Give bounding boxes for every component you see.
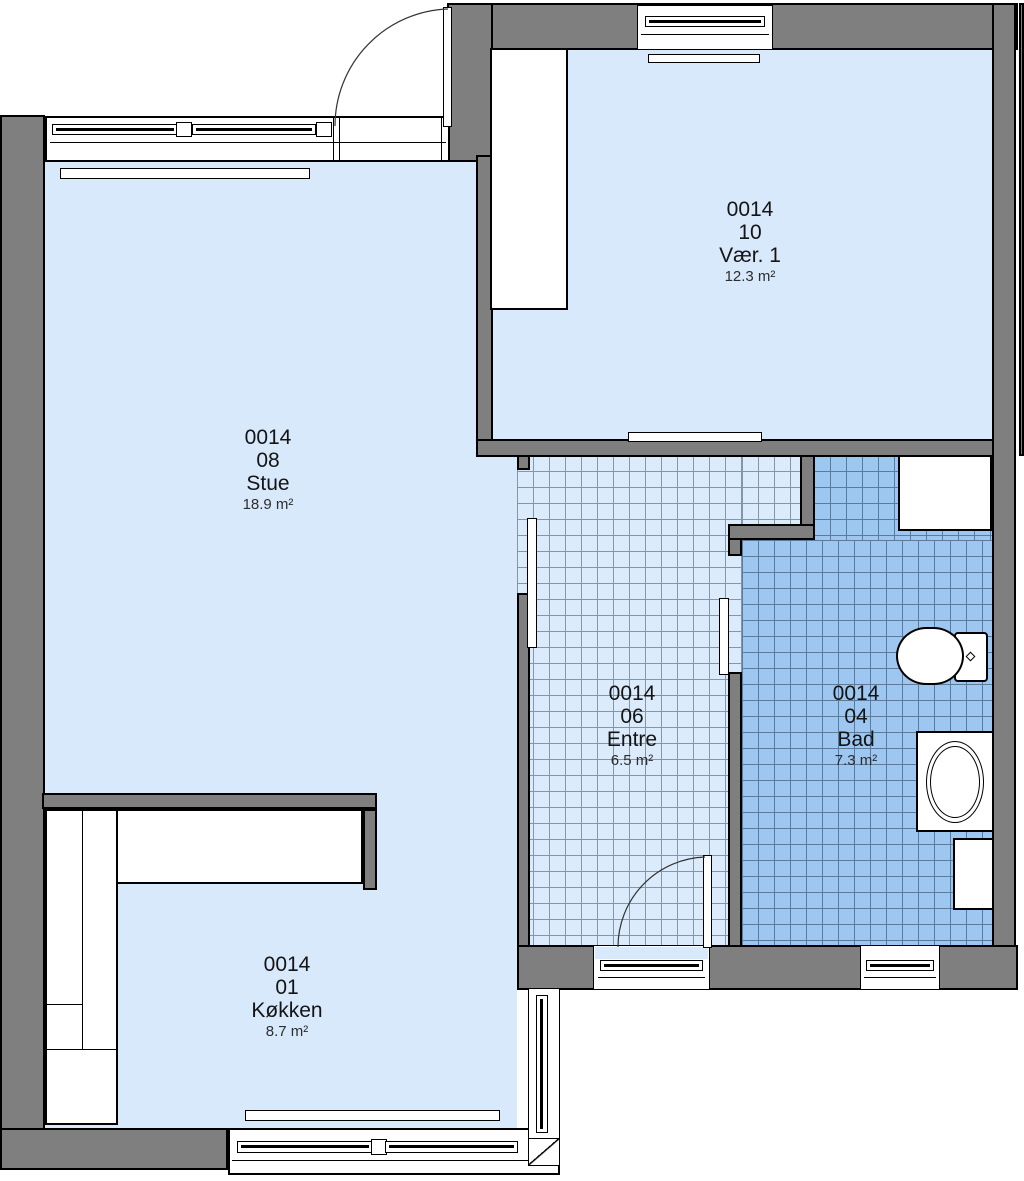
- radiator-vaer1: [648, 54, 760, 63]
- window-frame-line-kitchen: [232, 1160, 556, 1161]
- room-area-size: 18.9 m²: [158, 495, 378, 514]
- wall-kitchen-partition: [42, 793, 377, 809]
- room-number: 0014: [746, 682, 966, 705]
- door-jamb-line-1: [333, 118, 334, 160]
- window-glass-vaer1: [645, 16, 765, 27]
- entrance-door-glass: [600, 960, 703, 971]
- room-code: 01: [177, 976, 397, 999]
- room-label-vaer1: 0014 10 Vær. 1 12.3 m²: [640, 198, 860, 286]
- room-label-stue: 0014 08 Stue 18.9 m²: [158, 426, 378, 514]
- window-mullion-stue-2: [316, 122, 332, 137]
- floor-plan: 0014 08 Stue 18.9 m² 0014 10 Vær. 1 12.3…: [0, 0, 1024, 1181]
- room-area-size: 8.7 m²: [177, 1022, 397, 1041]
- window-glass-kitchen-2: [385, 1141, 518, 1153]
- window-glass-kitchen-right: [536, 995, 548, 1133]
- room-name: Vær. 1: [640, 244, 860, 267]
- wall-right-edge-strip: [1019, 3, 1024, 456]
- radiator-stue: [60, 168, 310, 179]
- wall-left-exterior: [0, 115, 45, 1170]
- toilet-bowl: [896, 627, 964, 685]
- room-area-size: 12.3 m²: [640, 267, 860, 286]
- room-area-entre-notch: [742, 455, 802, 526]
- room-number: 0014: [177, 953, 397, 976]
- window-glass-kitchen-1: [237, 1141, 373, 1153]
- window-frame-line-vaer1: [641, 34, 769, 35]
- door-jamb-line-2: [339, 118, 340, 160]
- entrance-threshold-fill: [595, 947, 708, 959]
- window-glass-stue-1: [52, 124, 178, 135]
- window-band-vaer1-top: [637, 5, 773, 50]
- closet-vaer1: [490, 48, 568, 310]
- wall-top-left-corner-block: [447, 3, 493, 162]
- kitchen-cabinet-divider-h2: [45, 1049, 118, 1050]
- room-number: 0014: [640, 198, 860, 221]
- wall-kitchen-partition-return: [363, 809, 377, 890]
- room-name: Bad: [746, 728, 966, 751]
- room-number: 0014: [158, 426, 378, 449]
- window-mullion-stue-1: [176, 122, 192, 137]
- bathroom-corner-unit: [953, 838, 992, 910]
- room-name: Entre: [522, 728, 742, 751]
- room-label-entre: 0014 06 Entre 6.5 m²: [522, 682, 742, 770]
- entrance-frame-line: [598, 977, 705, 978]
- door-leaf-vaer1: [628, 432, 762, 442]
- window-frame-line-bad: [864, 977, 936, 978]
- door-swing-arc-balcony: [335, 9, 448, 126]
- room-area-stue-kitchen-connector: [377, 793, 517, 809]
- room-area-size: 7.3 m²: [746, 751, 966, 770]
- wall-right-exterior: [992, 3, 1016, 990]
- window-band-stue-top: [45, 116, 450, 162]
- door-leaf-bad: [719, 598, 729, 675]
- kitchen-cabinet-divider-v: [82, 809, 83, 1050]
- door-leaf-balcony: [443, 7, 452, 127]
- radiator-kokken: [245, 1110, 500, 1121]
- kitchen-cabinet-divider-h1: [45, 1004, 83, 1005]
- window-glass-stue-2: [192, 124, 316, 135]
- window-corner-post: [528, 1138, 560, 1166]
- wall-bottom-left-exterior: [0, 1128, 228, 1170]
- room-label-kokken: 0014 01 Køkken 8.7 m²: [177, 953, 397, 1041]
- room-area-size: 6.5 m²: [522, 751, 742, 770]
- wall-stue-entre-stub: [517, 455, 530, 470]
- room-code: 08: [158, 449, 378, 472]
- room-code: 10: [640, 221, 860, 244]
- room-label-bad: 0014 04 Bad 7.3 m²: [746, 682, 966, 770]
- bathroom-cabinet: [898, 455, 992, 531]
- wall-bad-notch-stub: [728, 538, 742, 556]
- room-code: 06: [522, 705, 742, 728]
- door-leaf-stue-entre: [527, 518, 537, 648]
- door-leaf-entrance: [703, 855, 712, 948]
- room-name: Stue: [158, 472, 378, 495]
- room-name: Køkken: [177, 999, 397, 1022]
- room-code: 04: [746, 705, 966, 728]
- window-frame-line-stue: [50, 142, 446, 143]
- window-glass-bad: [866, 960, 934, 971]
- room-number: 0014: [522, 682, 742, 705]
- wall-bad-notch-vertical: [800, 455, 815, 530]
- kitchen-counter-top: [116, 809, 363, 884]
- door-jamb-line-3: [441, 118, 442, 160]
